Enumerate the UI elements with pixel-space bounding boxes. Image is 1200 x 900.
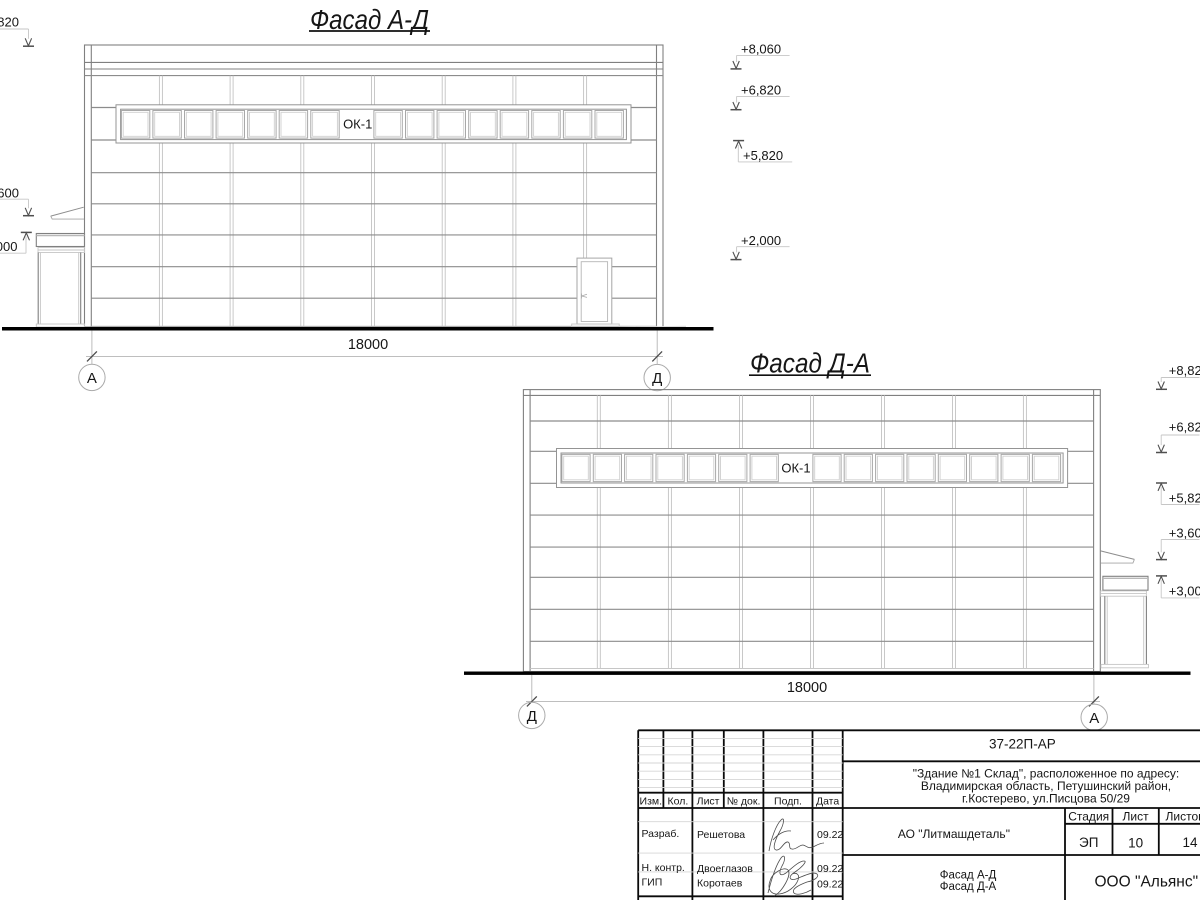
svg-text:+2,000: +2,000	[741, 233, 781, 248]
svg-text:37-22П-АР: 37-22П-АР	[989, 737, 1056, 752]
svg-text:Н. контр.: Н. контр.	[642, 862, 685, 874]
svg-text:14: 14	[1182, 835, 1198, 850]
svg-text:Фасад Д-А: Фасад Д-А	[940, 881, 997, 893]
svg-text:АО "Литмашдеталь": АО "Литмашдеталь"	[898, 827, 1010, 841]
svg-text:+6,820: +6,820	[741, 83, 781, 98]
svg-text:+5,820: +5,820	[1169, 490, 1200, 505]
svg-text:Д: Д	[652, 370, 662, 387]
svg-text:А: А	[1089, 710, 1099, 727]
svg-text:ГИП: ГИП	[642, 877, 663, 889]
svg-text:Стадия: Стадия	[1068, 810, 1109, 824]
svg-text:Кол.: Кол.	[668, 796, 689, 808]
svg-text:600: 600	[0, 186, 19, 201]
svg-text:820: 820	[0, 15, 19, 30]
svg-text:Лист: Лист	[1123, 810, 1150, 824]
svg-text:+3,000: +3,000	[1169, 584, 1200, 599]
svg-text:г.Костерево, ул.Писцова 50/29: г.Костерево, ул.Писцова 50/29	[962, 792, 1130, 806]
svg-text:+8,060: +8,060	[741, 42, 781, 57]
svg-text:09.22: 09.22	[817, 829, 843, 841]
svg-text:Дата: Дата	[816, 796, 839, 808]
svg-text:Д: Д	[527, 708, 537, 725]
svg-text:Лист: Лист	[697, 796, 720, 808]
svg-text:Двоеглазов: Двоеглазов	[697, 863, 753, 875]
svg-text:09.22: 09.22	[817, 879, 843, 891]
svg-text:18000: 18000	[787, 680, 827, 696]
svg-text:18000: 18000	[348, 337, 388, 353]
svg-text:ООО "Альянс": ООО "Альянс"	[1094, 874, 1198, 891]
svg-text:000: 000	[0, 239, 18, 254]
svg-text:Фасад Д-А: Фасад Д-А	[750, 348, 870, 379]
svg-text:+5,820: +5,820	[743, 148, 783, 163]
svg-text:Фасад А-Д: Фасад А-Д	[940, 870, 997, 882]
svg-text:Разраб.: Разраб.	[642, 828, 680, 840]
svg-text:Коротаев: Коротаев	[697, 878, 743, 890]
svg-text:09.22: 09.22	[817, 863, 843, 875]
svg-text:Изм.: Изм.	[640, 796, 663, 808]
svg-text:+6,820: +6,820	[1169, 420, 1200, 435]
svg-text:10: 10	[1128, 836, 1143, 851]
svg-text:+3,600: +3,600	[1169, 525, 1200, 540]
svg-text:Решетова: Решетова	[697, 829, 745, 841]
svg-text:ОК-1: ОК-1	[781, 461, 810, 476]
svg-text:ОК-1: ОК-1	[343, 117, 372, 132]
svg-text:ЭП: ЭП	[1079, 835, 1098, 850]
svg-text:+8,820: +8,820	[1169, 363, 1200, 378]
svg-text:№ док.: № док.	[727, 796, 761, 808]
svg-text:Подп.: Подп.	[774, 796, 802, 808]
svg-text:А: А	[87, 370, 97, 387]
svg-text:Листов: Листов	[1166, 810, 1200, 824]
